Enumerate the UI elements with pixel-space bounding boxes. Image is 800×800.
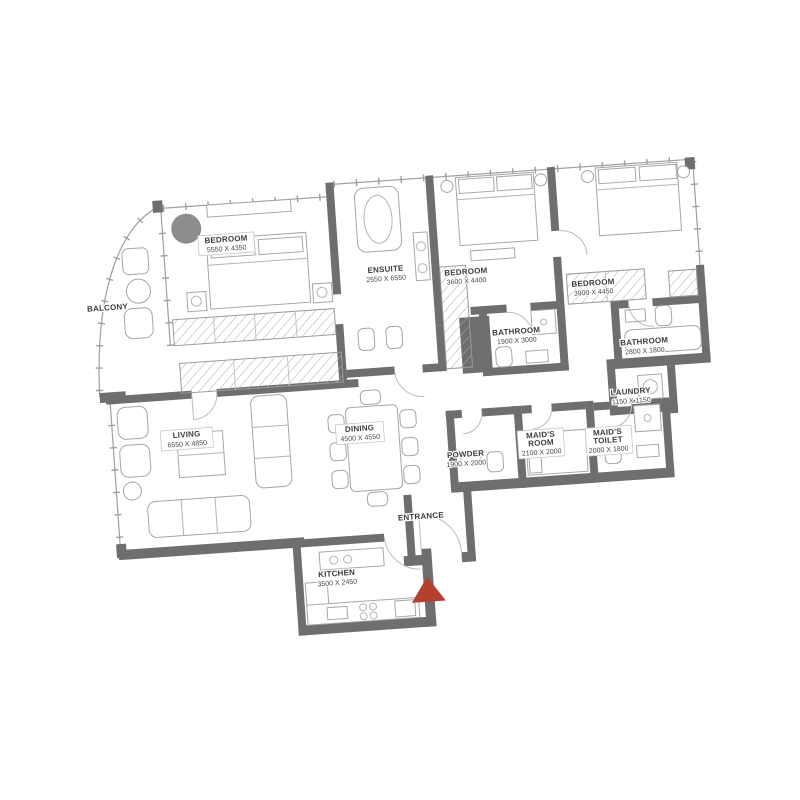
room-label-kitchen: KITCHEN	[318, 568, 356, 580]
door-arc	[559, 229, 587, 257]
toilet	[487, 451, 504, 472]
room-dims-powder: 1900 X 2000	[446, 459, 486, 469]
room-label-ensuite: ENSUITE	[367, 264, 404, 276]
floor-plan-page: BEDROOM 5550 X 4350 ENSUITE 2550 X 6550 …	[0, 0, 800, 800]
furniture-dining	[326, 387, 422, 509]
basin	[625, 309, 646, 322]
chair	[331, 470, 348, 489]
entrance-marker-icon	[410, 576, 446, 603]
room-label-bathroom1: BATHROOM	[492, 325, 541, 337]
nightstand	[312, 283, 332, 303]
toilet	[495, 346, 512, 367]
bench	[470, 248, 515, 261]
side-table	[677, 165, 690, 178]
pillow	[639, 164, 677, 181]
pillow	[496, 174, 532, 190]
balcony	[87, 207, 172, 398]
toilet	[655, 305, 672, 326]
room-dims-ensuite: 2550 X 6550	[366, 274, 406, 284]
nightstand	[187, 291, 207, 311]
armchair	[119, 444, 151, 478]
room-label-bedroom2: BEDROOM	[444, 266, 488, 278]
chair	[401, 437, 418, 456]
dresser	[207, 199, 292, 217]
room-label-entrance: ENTRANCE	[398, 510, 445, 522]
side-table	[581, 170, 594, 183]
shower	[634, 404, 662, 432]
balcony-table	[126, 278, 152, 304]
rug	[170, 213, 202, 245]
toilet	[358, 328, 375, 351]
room-dims-bathroom2: 2800 X 1800	[625, 347, 665, 357]
closet-hatch	[668, 269, 698, 297]
door-arc	[192, 393, 219, 420]
door-arc	[462, 412, 483, 433]
chair	[399, 409, 416, 428]
closet-hatch	[173, 309, 336, 346]
dining-table	[345, 404, 403, 491]
furniture-bedroom3	[581, 161, 693, 236]
balcony-chair	[124, 307, 154, 339]
room-dims-bathroom1: 1900 X 3000	[497, 336, 537, 346]
side-table	[534, 173, 547, 186]
sofa	[147, 495, 251, 538]
room-label-maids-room-2: ROOM	[528, 438, 554, 449]
sink	[327, 606, 348, 619]
basin	[636, 444, 659, 458]
sofa	[250, 394, 292, 488]
side-table	[441, 180, 454, 193]
vanity	[413, 232, 430, 281]
room-label-balcony: BALCONY	[87, 302, 129, 314]
floor-plan: BEDROOM 5550 X 4350 ENSUITE 2550 X 6550 …	[0, 0, 800, 800]
furniture-bedroom2	[440, 171, 552, 262]
chair	[403, 465, 420, 484]
pillow	[598, 167, 636, 184]
bidet	[386, 326, 403, 349]
balcony-chair	[121, 247, 149, 275]
armchair	[117, 406, 149, 440]
side-table	[123, 481, 142, 500]
door-arc	[395, 369, 425, 399]
chair	[367, 491, 388, 506]
chair	[360, 390, 381, 405]
furniture-master-bedroom	[170, 197, 333, 313]
room-dims-kitchen: 3500 X 2450	[317, 579, 357, 589]
door-arc	[532, 408, 553, 429]
pillow	[258, 237, 303, 255]
room-dims-bedroom2: 3600 X 4400	[447, 277, 487, 287]
pillow	[458, 177, 494, 193]
basin	[526, 350, 549, 364]
